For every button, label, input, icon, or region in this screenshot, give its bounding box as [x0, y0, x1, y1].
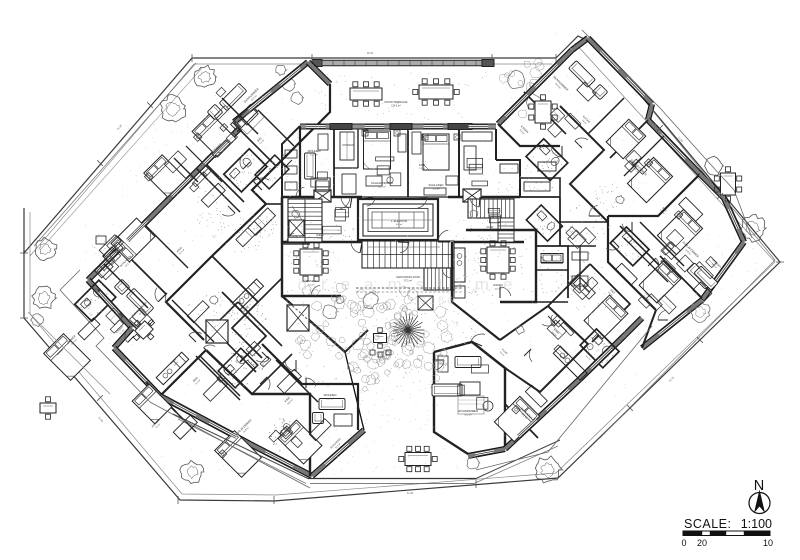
- svg-text:9.9 m²: 9.9 m²: [419, 167, 425, 170]
- svg-text:12.30: 12.30: [407, 491, 414, 495]
- svg-text:WOHNZIMMER: WOHNZIMMER: [458, 409, 478, 413]
- svg-text:SCHLAFEN: SCHLAFEN: [429, 183, 444, 187]
- svg-text:124.3 m²: 124.3 m²: [391, 105, 401, 108]
- svg-text:0: 0: [681, 538, 686, 548]
- svg-text:18.20: 18.20: [367, 51, 374, 55]
- svg-text:1:100: 1:100: [741, 517, 772, 531]
- svg-text:21.9 m²: 21.9 m²: [326, 397, 334, 400]
- svg-text:6.2 m²: 6.2 m²: [317, 237, 323, 240]
- svg-text:0186: 0186: [420, 295, 456, 307]
- svg-text:WOHNEN: WOHNEN: [324, 393, 337, 397]
- svg-text:KIND: KIND: [419, 163, 425, 167]
- svg-text:L. ELEVATOR: L. ELEVATOR: [391, 219, 407, 223]
- svg-text:dreamstime: dreamstime: [298, 275, 527, 294]
- svg-text:20: 20: [697, 538, 707, 548]
- svg-text:10: 10: [763, 538, 773, 548]
- svg-text:FLUR: FLUR: [487, 225, 494, 229]
- svg-text:10.5 m²: 10.5 m²: [396, 223, 403, 226]
- svg-text:SCHRANK: SCHRANK: [342, 144, 354, 147]
- svg-text:N: N: [754, 478, 764, 494]
- svg-text:11.8 m²: 11.8 m²: [432, 187, 440, 190]
- svg-text:5.8 m²: 5.8 m²: [487, 229, 493, 232]
- svg-text:ROOFTERRACE: ROOFTERRACE: [384, 100, 407, 104]
- svg-text:16.3 m²: 16.3 m²: [310, 153, 318, 156]
- svg-text:SCALE:: SCALE:: [684, 517, 731, 531]
